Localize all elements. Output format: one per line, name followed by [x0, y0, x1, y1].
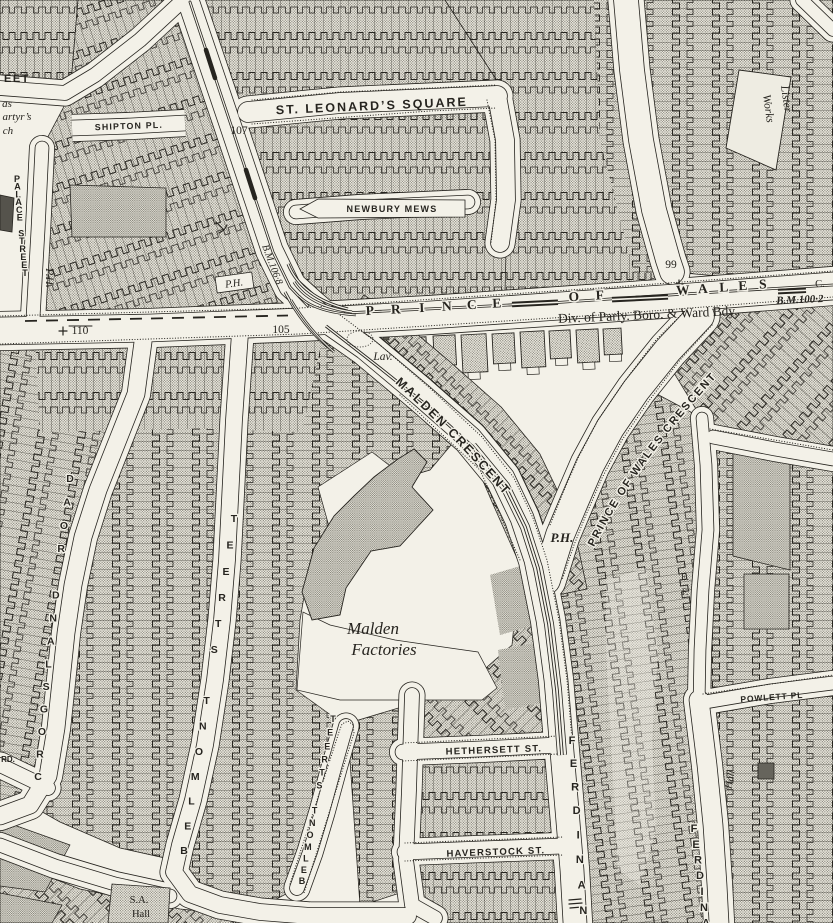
svg-text:E.: E. — [681, 572, 689, 582]
svg-text:B.M.100·2: B.M.100·2 — [775, 293, 824, 307]
svg-text:RD.: RD. — [1, 755, 15, 764]
svg-text:N: N — [49, 613, 57, 625]
svg-text:T: T — [231, 513, 238, 525]
svg-text:as: as — [2, 98, 12, 110]
svg-text:L: L — [188, 796, 195, 808]
svg-text:L: L — [719, 279, 729, 294]
svg-text:L: L — [303, 853, 309, 863]
svg-text:E: E — [301, 865, 307, 875]
svg-text:L: L — [45, 658, 52, 670]
svg-text:S: S — [316, 781, 322, 791]
svg-text:C: C — [34, 771, 42, 783]
svg-text:Hall: Hall — [132, 909, 150, 920]
svg-text:O: O — [60, 520, 68, 532]
svg-text:ch: ch — [3, 125, 14, 137]
svg-text:N: N — [700, 902, 708, 914]
svg-text:E: E — [226, 540, 233, 552]
svg-text:T: T — [330, 714, 336, 724]
svg-text:E: E — [324, 741, 330, 751]
svg-text:P.H.: P.H. — [43, 267, 55, 288]
svg-text:P.H.: P.H. — [551, 530, 574, 545]
svg-text:I: I — [577, 830, 580, 842]
svg-text:NEWBURY MEWS: NEWBURY MEWS — [347, 204, 438, 214]
svg-text:N: N — [576, 854, 584, 866]
svg-text:R: R — [571, 781, 579, 793]
svg-text:A: A — [578, 879, 586, 891]
svg-text:F.: F. — [682, 587, 689, 597]
svg-text:O: O — [568, 289, 579, 304]
svg-text:107: 107 — [230, 125, 248, 137]
svg-text:R: R — [694, 855, 702, 867]
svg-text:O: O — [306, 830, 313, 840]
svg-text:R: R — [218, 592, 226, 604]
svg-text:A: A — [702, 918, 710, 923]
svg-text:E: E — [222, 566, 229, 578]
svg-text:I: I — [419, 300, 425, 315]
svg-text:B: B — [299, 876, 306, 886]
svg-text:E: E — [492, 295, 502, 310]
svg-text:D: D — [696, 870, 704, 882]
svg-text:110: 110 — [72, 325, 89, 337]
svg-text:T: T — [215, 618, 222, 630]
svg-text:B: B — [180, 845, 188, 857]
svg-text:F: F — [691, 823, 698, 835]
svg-text:A: A — [63, 497, 71, 509]
svg-text:C: C — [467, 297, 477, 312]
svg-text:F: F — [595, 287, 604, 302]
svg-text:N: N — [199, 721, 207, 733]
svg-text:S: S — [211, 644, 218, 656]
svg-text:S.A.: S.A. — [130, 895, 149, 906]
svg-text:R: R — [57, 543, 65, 555]
svg-text:105: 105 — [272, 324, 290, 336]
svg-text:W: W — [676, 282, 691, 298]
svg-text:T: T — [312, 806, 318, 816]
svg-text:99: 99 — [665, 259, 677, 271]
svg-text:E: E — [570, 758, 577, 770]
svg-text:P: P — [365, 303, 374, 318]
svg-text:E: E — [327, 728, 333, 738]
svg-text:R: R — [321, 755, 328, 765]
svg-text:N: N — [579, 905, 587, 917]
svg-text:T: T — [319, 768, 325, 778]
svg-text:E: E — [184, 821, 191, 833]
svg-text:N: N — [309, 818, 316, 828]
svg-text:F: F — [569, 735, 576, 747]
svg-text:D: D — [66, 473, 74, 485]
svg-text:N: N — [442, 298, 453, 313]
svg-text:E: E — [692, 839, 699, 851]
svg-text:M: M — [191, 771, 200, 783]
svg-text:E: E — [17, 213, 23, 223]
svg-text:artyr’s: artyr’s — [3, 111, 32, 123]
svg-text:D: D — [52, 590, 60, 602]
svg-text:A: A — [47, 635, 55, 647]
svg-text:M: M — [304, 842, 312, 852]
svg-text:R: R — [391, 301, 402, 316]
svg-text:T: T — [22, 268, 28, 278]
svg-text:R: R — [36, 749, 44, 761]
svg-text:S: S — [759, 276, 767, 291]
svg-text:Malden: Malden — [346, 619, 399, 638]
svg-text:G: G — [40, 704, 48, 716]
svg-text:D: D — [573, 805, 581, 817]
svg-text:T: T — [203, 695, 210, 707]
svg-text:Factories: Factories — [350, 640, 417, 659]
svg-text:S: S — [43, 681, 50, 693]
svg-text:EET: EET — [4, 73, 30, 85]
svg-text:C.: C. — [815, 279, 825, 290]
svg-text:I: I — [700, 886, 703, 898]
svg-text:E: E — [738, 278, 748, 293]
svg-text:Lav.: Lav. — [372, 351, 392, 363]
svg-text:A: A — [698, 281, 709, 296]
svg-text:O: O — [38, 726, 46, 738]
svg-text:O: O — [195, 746, 203, 758]
